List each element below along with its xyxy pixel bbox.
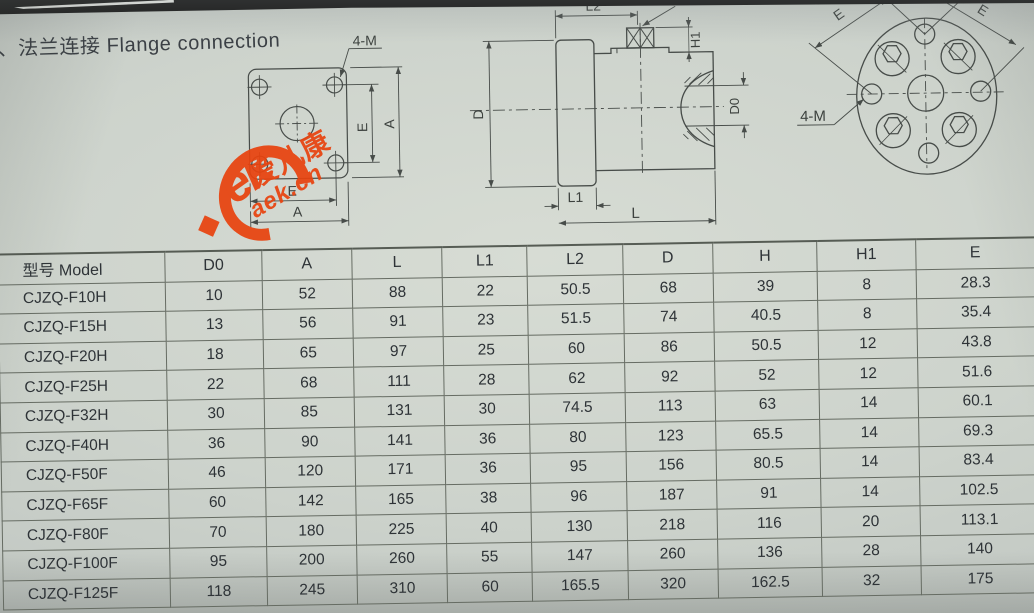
- dim-label-4m: 4-M: [353, 32, 377, 48]
- aek-logo-star: ◆: [191, 204, 225, 245]
- dimension-cell: 92: [624, 362, 715, 393]
- dimension-cell: 35.4: [916, 297, 1034, 329]
- dimension-cell: 65: [263, 338, 354, 369]
- dimension-cell: 8: [818, 299, 917, 330]
- dimension-cell: 62: [529, 363, 625, 394]
- dimension-cell: 8: [817, 269, 916, 300]
- flange-rear-view-drawing: E E 4-M: [785, 0, 1032, 199]
- table-col-header: H: [713, 241, 818, 273]
- dimension-cell: 91: [353, 307, 444, 338]
- dimension-cell: 32: [822, 565, 921, 596]
- photographed-datasheet-page: 2、法兰连接 Flange connection: [0, 0, 1034, 613]
- dimension-cell: 69.3: [918, 415, 1034, 447]
- dimension-cell: 116: [717, 508, 822, 539]
- dimension-cell: 180: [266, 515, 357, 546]
- dimension-cell: 23: [443, 305, 529, 336]
- table-col-header: D0: [165, 250, 262, 282]
- dimension-cell: 14: [819, 388, 918, 419]
- dimension-cell: 74.5: [530, 393, 626, 424]
- dimension-cell: 260: [627, 539, 718, 570]
- dimension-cell: 51.5: [528, 304, 624, 335]
- bore-centerlines: [275, 104, 320, 143]
- dimension-cell: 141: [355, 425, 446, 456]
- dimension-cell: 136: [718, 537, 823, 568]
- dimension-cell: 22: [167, 369, 264, 400]
- dimension-cell: 90: [264, 427, 355, 458]
- dimension-cell: 118: [171, 576, 268, 607]
- dimension-cell: 46: [169, 458, 266, 489]
- dimension-cell: 171: [355, 455, 446, 486]
- dimension-cell: 20: [821, 506, 920, 537]
- dim-label-4m: 4-M: [800, 108, 826, 125]
- dimension-cell: 200: [266, 545, 357, 576]
- flange-plate-side: [556, 40, 596, 187]
- model-cell: CJZQ-F125F: [3, 578, 171, 610]
- dimension-cell: 14: [821, 477, 920, 508]
- small-bolt-holes: [861, 23, 992, 164]
- dim-label-a-horizontal: A: [293, 203, 303, 219]
- dimension-cell: 320: [628, 569, 719, 600]
- dimension-cell: 97: [353, 336, 444, 367]
- dimension-cell: 38: [446, 483, 532, 514]
- dimension-cell: 80: [530, 422, 626, 453]
- dimension-cell: 85: [264, 397, 355, 428]
- dimension-cell: 14: [820, 417, 919, 448]
- dimension-cell: 95: [170, 547, 267, 578]
- dimension-cell: 131: [354, 396, 445, 427]
- dim-label-d0: D0: [727, 98, 742, 115]
- hatch-upper: [684, 73, 713, 85]
- dimension-cell: 175: [921, 563, 1034, 595]
- dimension-cell: 10: [166, 280, 263, 311]
- model-cell: CJZQ-F10H: [0, 282, 166, 314]
- dimension-cell: 51.6: [917, 356, 1034, 388]
- dimension-cell: 111: [354, 366, 445, 397]
- dimension-cell: 70: [170, 517, 267, 548]
- model-cell: CJZQ-F25H: [0, 371, 168, 403]
- dimension-cell: 165: [356, 484, 447, 515]
- dimension-cell: 28.3: [916, 267, 1034, 299]
- bore-lines: [685, 86, 715, 126]
- dimension-cell: 52: [262, 279, 353, 310]
- model-cell: CJZQ-F40H: [1, 430, 169, 462]
- sw-leader-line: [642, 6, 675, 26]
- dim-label-e-left: E: [830, 5, 847, 23]
- dimension-cell: 102.5: [919, 475, 1034, 507]
- dimension-cell: 147: [532, 541, 628, 572]
- dim-label-l: L: [631, 205, 640, 222]
- model-cell: CJZQ-F15H: [0, 311, 167, 343]
- dim-label-d: D: [470, 109, 486, 119]
- dimension-cell: 80.5: [716, 449, 821, 480]
- dimension-cell: 40: [446, 513, 532, 544]
- spec-table-wrap: 型号 ModelD0ALL1L2DHH1E CJZQ-F10H105288225…: [0, 236, 1034, 610]
- dimension-cell: 68: [623, 273, 714, 304]
- dimension-cell: 86: [624, 332, 715, 363]
- dimension-cell: 113: [625, 391, 716, 422]
- model-cell: CJZQ-F100F: [3, 548, 171, 580]
- dimension-cell: 40.5: [714, 301, 819, 332]
- dimension-cell: 74: [623, 302, 714, 333]
- dimension-cell: 60: [529, 333, 625, 364]
- dimension-cell: 18: [167, 339, 264, 370]
- dimension-cell: 83.4: [919, 445, 1034, 477]
- dimension-cell: 36: [445, 424, 531, 455]
- dim-label-l1: L1: [567, 189, 583, 205]
- dimension-cell: 225: [356, 514, 447, 545]
- dimension-cell: 13: [166, 310, 263, 341]
- table-col-header: L: [352, 247, 443, 279]
- table-col-header: A: [261, 249, 352, 281]
- flange-front-view-drawing: 4-M E A E A: [234, 31, 429, 240]
- model-cell: CJZQ-F65F: [2, 489, 170, 521]
- dimension-cell: 36: [445, 453, 531, 484]
- table-col-header: E: [915, 237, 1034, 269]
- dimension-cell: 142: [265, 486, 356, 517]
- dimension-cell: 63: [715, 389, 820, 420]
- dimension-cell: 165.5: [533, 570, 629, 601]
- dimension-cell: 218: [627, 509, 718, 540]
- axis-centerline: [470, 106, 724, 110]
- dimension-cell: 96: [531, 481, 627, 512]
- dimension-cell: 156: [626, 450, 717, 481]
- model-cell: CJZQ-F20H: [0, 341, 167, 373]
- dimension-cell: 187: [626, 480, 717, 511]
- dimension-cell: 39: [713, 271, 818, 302]
- table-col-header: D: [622, 243, 713, 275]
- dimension-cell: 50.5: [714, 330, 819, 361]
- dimension-cell: 65.5: [716, 419, 821, 450]
- dimension-cell: 60: [447, 572, 533, 603]
- dimension-cell: 60: [169, 487, 266, 518]
- dimension-cell: 12: [819, 358, 918, 389]
- table-col-header: 型号 Model: [0, 252, 166, 285]
- spec-table: 型号 ModelD0ALL1L2DHH1E CJZQ-F10H105288225…: [0, 236, 1034, 610]
- dimension-cell: 55: [447, 542, 533, 573]
- dimension-cell: 36: [168, 428, 265, 459]
- table-col-header: H1: [817, 239, 916, 271]
- dimension-cell: 95: [531, 452, 627, 483]
- model-cell: CJZQ-F50F: [1, 459, 169, 491]
- dimension-cell: 310: [357, 573, 448, 604]
- page-content: 2、法兰连接 Flange connection: [0, 0, 1034, 613]
- flange-side-view-drawing: L2 SW H1 D D0 L1 L: [450, 0, 766, 240]
- dimension-cell: 50.5: [528, 274, 624, 305]
- model-cell: CJZQ-F80F: [2, 519, 170, 551]
- dimension-cell: 123: [625, 421, 716, 452]
- dimension-cell: 88: [352, 277, 443, 308]
- model-cell: CJZQ-F32H: [0, 400, 168, 432]
- dimension-cell: 28: [444, 365, 530, 396]
- dim-label-e-right: E: [975, 1, 991, 20]
- dimension-cell: 245: [267, 575, 358, 606]
- dimension-cell: 14: [820, 447, 919, 478]
- dimension-cell: 43.8: [917, 327, 1034, 359]
- dimension-cell: 28: [822, 536, 921, 567]
- dimension-cell: 68: [263, 368, 354, 399]
- dim-label-e-horizontal: E: [287, 183, 297, 199]
- dimension-cell: 91: [717, 478, 822, 509]
- table-col-header: L1: [442, 246, 528, 278]
- dim-label-h1: H1: [688, 31, 703, 48]
- table-col-header: L2: [527, 244, 623, 276]
- dimension-cell: 30: [168, 399, 265, 430]
- dimension-cell: 25: [443, 335, 529, 366]
- bolt-leader-line: [340, 49, 349, 77]
- dimension-cell: 113.1: [920, 504, 1034, 536]
- dimension-cell: 60.1: [918, 386, 1034, 418]
- dimension-cell: 56: [262, 308, 353, 339]
- dimension-cell: 162.5: [718, 567, 823, 598]
- dim-label-e-vertical: E: [354, 123, 370, 133]
- dimension-cell: 140: [920, 534, 1034, 566]
- dimension-cell: 120: [265, 456, 356, 487]
- dimension-cell: 22: [442, 276, 528, 307]
- dimension-cell: 130: [532, 511, 628, 542]
- dimension-cell: 52: [715, 360, 820, 391]
- dim-label-a-vertical: A: [381, 119, 397, 129]
- dimension-cell: 12: [818, 329, 917, 360]
- dimension-cell: 30: [444, 394, 530, 425]
- dimension-cell: 260: [357, 544, 448, 575]
